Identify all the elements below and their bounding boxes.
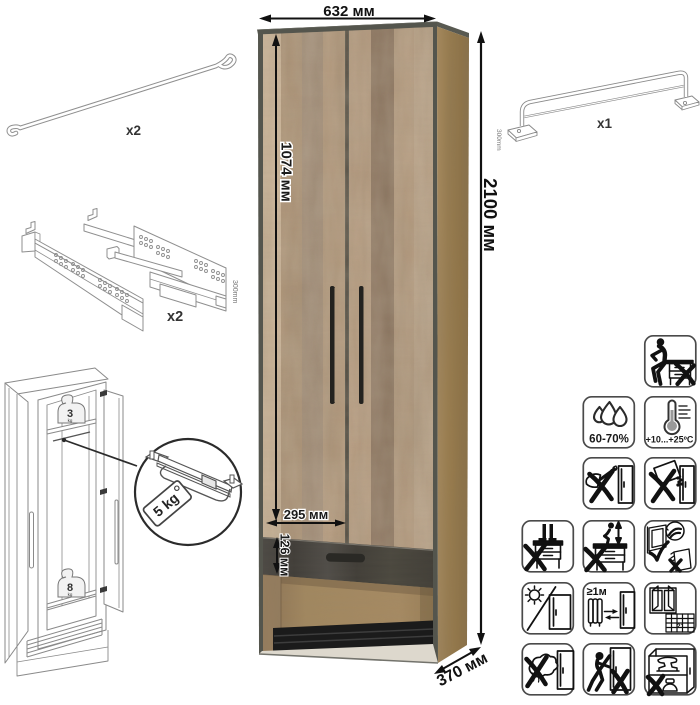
svg-text:kg: kg bbox=[68, 592, 73, 597]
svg-text:+10...+25ºC: +10...+25ºC bbox=[646, 435, 694, 445]
svg-text:126 мм: 126 мм bbox=[278, 534, 292, 577]
svg-text:≥1м: ≥1м bbox=[587, 586, 607, 598]
svg-text:x2: x2 bbox=[167, 309, 183, 325]
svg-text:x2: x2 bbox=[126, 123, 141, 138]
svg-text:632 мм: 632 мм bbox=[323, 3, 374, 20]
svg-text:300mm: 300mm bbox=[495, 129, 502, 151]
svg-text:kg: kg bbox=[68, 418, 73, 423]
svg-text:60-70%: 60-70% bbox=[589, 434, 629, 446]
svg-text:21: 21 bbox=[677, 623, 685, 630]
svg-text:1074 мм: 1074 мм bbox=[278, 142, 295, 202]
svg-text:300mm: 300mm bbox=[231, 280, 238, 304]
svg-text:2100 мм: 2100 мм bbox=[480, 178, 501, 252]
svg-text:295 мм: 295 мм bbox=[284, 507, 329, 522]
svg-text:x1: x1 bbox=[597, 116, 613, 131]
